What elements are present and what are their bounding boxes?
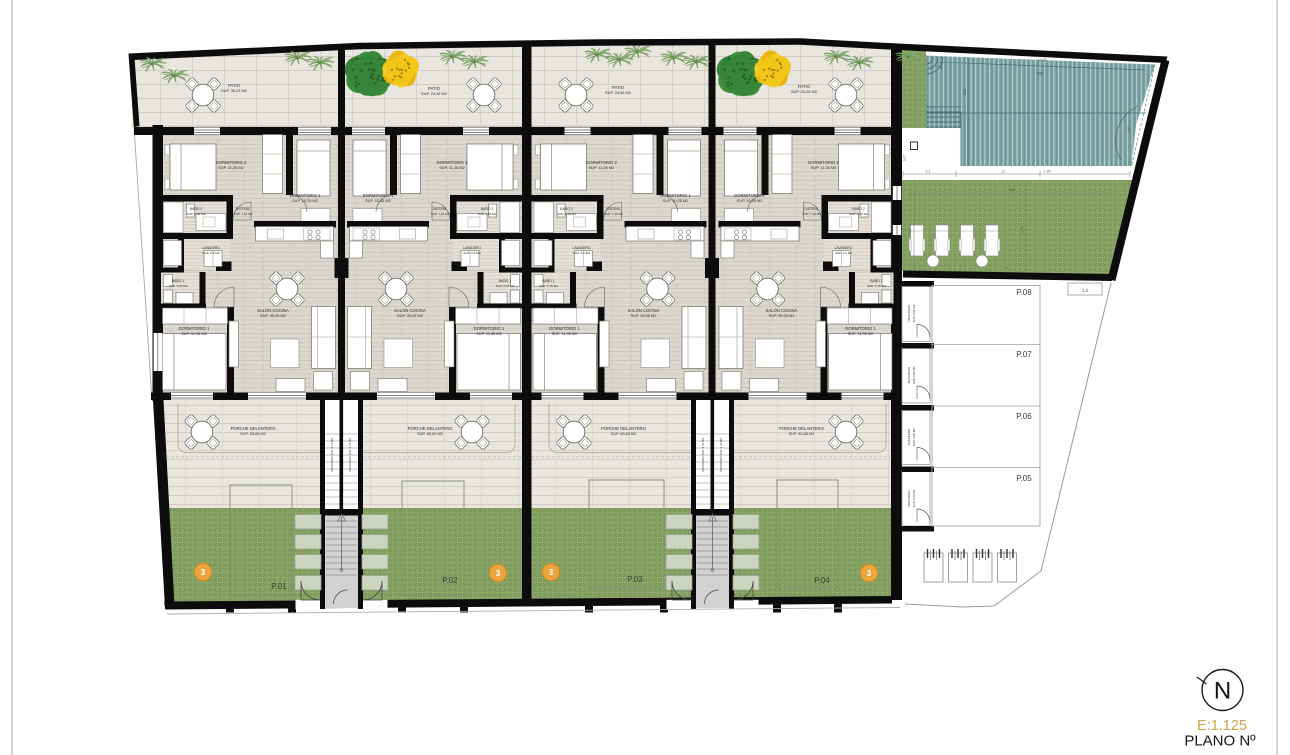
svg-text:TRASTERO SUP. 2,47 M2: TRASTERO SUP. 2,47 M2 (330, 438, 334, 473)
svg-text:SUP. 63,65 M2: SUP. 63,65 M2 (789, 431, 815, 436)
svg-text:P.03: P.03 (627, 575, 643, 584)
svg-text:SUP. 11,26 M2: SUP. 11,26 M2 (218, 165, 244, 170)
svg-text:P.07: P.07 (1016, 350, 1032, 359)
svg-text:SUP. 3,90 M2: SUP. 3,90 M2 (849, 212, 868, 216)
svg-text:SUP. 10,25 M2: SUP. 10,25 M2 (663, 198, 689, 203)
svg-text:P.06: P.06 (1016, 412, 1032, 421)
svg-text:SUP. 39,05 M2: SUP. 39,05 M2 (260, 313, 286, 318)
svg-text:SUP. 39,05 M2: SUP. 39,05 M2 (397, 313, 423, 318)
svg-text:SUP. 10,25 M2: SUP. 10,25 M2 (292, 198, 318, 203)
svg-text:TRASTERO: TRASTERO (907, 304, 911, 321)
svg-text:1,5: 1,5 (1004, 266, 1009, 270)
svg-text:PLANO Nº: PLANO Nº (1184, 733, 1256, 750)
svg-text:SUP. 11,26 M2: SUP. 11,26 M2 (589, 165, 615, 170)
svg-text:BAÑO 1: BAÑO 1 (870, 278, 883, 283)
svg-text:BAÑO 1: BAÑO 1 (172, 278, 185, 283)
svg-text:SUP. 39,05 M2: SUP. 39,05 M2 (631, 313, 657, 318)
svg-text:9,65: 9,65 (1009, 188, 1016, 192)
svg-text:SUP. 63,65 M2: SUP. 63,65 M2 (240, 431, 266, 436)
svg-text:3: 3 (496, 569, 501, 578)
svg-text:TRASTERO: TRASTERO (907, 428, 911, 445)
svg-text:DISTRIB.: DISTRIB. (433, 207, 447, 211)
svg-text:SUP. 2,05 M2: SUP. 2,05 M2 (912, 428, 916, 446)
svg-text:9,47: 9,47 (903, 155, 907, 161)
svg-text:TRASTERO SUP. 2,47 M2: TRASTERO SUP. 2,47 M2 (719, 438, 723, 473)
svg-text:SUP. 24,26 M2: SUP. 24,26 M2 (421, 91, 447, 96)
svg-text:P.01: P.01 (271, 582, 287, 591)
svg-text:SUP. 7,16 M2: SUP. 7,16 M2 (431, 212, 450, 216)
svg-text:SUP. 3,90 M2: SUP. 3,90 M2 (557, 212, 576, 216)
svg-text:SUP. 10,25 M2: SUP. 10,25 M2 (737, 198, 763, 203)
svg-text:BAÑO 2: BAÑO 2 (481, 206, 494, 211)
svg-text:SUP. 2,5 M2: SUP. 2,5 M2 (835, 251, 852, 255)
svg-text:SUP. 10,25 M2: SUP. 10,25 M2 (365, 198, 391, 203)
svg-text:P.08: P.08 (1016, 288, 1032, 297)
svg-text:SUP. 2,5 M2: SUP. 2,5 M2 (202, 251, 219, 255)
svg-text:SUP. 11,96 M2: SUP. 11,96 M2 (848, 331, 874, 336)
svg-text:SUP. 2,05 M2: SUP. 2,05 M2 (912, 489, 916, 507)
svg-text:BAÑO 2: BAÑO 2 (560, 206, 573, 211)
svg-text:SUP. 11,96 M2: SUP. 11,96 M2 (476, 331, 502, 336)
svg-text:3: 3 (201, 568, 206, 577)
svg-text:SUP. 11,26 M2: SUP. 11,26 M2 (811, 165, 837, 170)
svg-text:N: N (1214, 678, 1231, 705)
svg-text:SUP. 36,23 M2: SUP. 36,23 M2 (221, 88, 247, 93)
svg-text:4,46: 4,46 (1020, 227, 1024, 234)
svg-text:P.04: P.04 (814, 576, 830, 585)
svg-text:SUP. 3,75 M2: SUP. 3,75 M2 (496, 284, 515, 288)
svg-text:1,2: 1,2 (1082, 288, 1089, 293)
svg-text:SUP. 11,96 M2: SUP. 11,96 M2 (181, 331, 207, 336)
svg-text:TRASTERO: TRASTERO (907, 489, 911, 506)
svg-text:3: 3 (549, 568, 554, 577)
svg-text:SUP. 2,5 M2: SUP. 2,5 M2 (573, 251, 590, 255)
svg-text:SUP. 2,05 M2: SUP. 2,05 M2 (912, 366, 916, 384)
svg-text:DISTRIB.: DISTRIB. (804, 207, 818, 211)
svg-text:2,59: 2,59 (963, 89, 967, 95)
svg-text:SUP. 63,65 M2: SUP. 63,65 M2 (611, 431, 637, 436)
svg-text:SUP. 24,26 M2: SUP. 24,26 M2 (791, 89, 817, 94)
svg-text:SUP. 3,75 M2: SUP. 3,75 M2 (169, 284, 188, 288)
svg-text:SUP. 7,16 M2: SUP. 7,16 M2 (604, 212, 623, 216)
svg-text:7,39: 7,39 (1044, 170, 1051, 174)
svg-text:SUP. 3,90 M2: SUP. 3,90 M2 (478, 212, 497, 216)
svg-text:10,02: 10,02 (1038, 58, 1047, 62)
svg-text:DISTRIB.: DISTRIB. (236, 207, 250, 211)
svg-text:P.02: P.02 (442, 576, 458, 585)
svg-text:LAVADERO: LAVADERO (463, 246, 481, 250)
svg-text:BAÑO 2: BAÑO 2 (852, 206, 865, 211)
svg-text:SUP. 7,16 M2: SUP. 7,16 M2 (802, 212, 821, 216)
svg-text:LAVADERO: LAVADERO (835, 246, 853, 250)
svg-text:SUP. 11,96 M2: SUP. 11,96 M2 (552, 331, 578, 336)
svg-text:P.05: P.05 (1016, 474, 1032, 483)
svg-text:15: 15 (1001, 170, 1005, 174)
svg-text:SUP. 3,75 M2: SUP. 3,75 M2 (867, 284, 886, 288)
svg-text:SUP. 24,00 M2: SUP. 24,00 M2 (605, 90, 631, 95)
svg-text:SUP. 63,65 M2: SUP. 63,65 M2 (417, 431, 443, 436)
svg-text:4,1: 4,1 (908, 229, 912, 234)
svg-text:SUP. 11,26 M2: SUP. 11,26 M2 (439, 165, 465, 170)
svg-text:SUP. 2,05 M2: SUP. 2,05 M2 (912, 304, 916, 322)
svg-text:BAÑO 2: BAÑO 2 (190, 206, 203, 211)
svg-text:SUP. 3,90 M2: SUP. 3,90 M2 (187, 212, 206, 216)
svg-text:3: 3 (867, 569, 872, 578)
svg-text:BAÑO 1: BAÑO 1 (499, 278, 512, 283)
svg-text:2,1: 2,1 (926, 170, 931, 174)
svg-text:SUP. 2,5 M2: SUP. 2,5 M2 (463, 251, 480, 255)
svg-text:SUP. 3,75 M2: SUP. 3,75 M2 (539, 284, 558, 288)
svg-text:TRASTERO SUP. 2,47 M2: TRASTERO SUP. 2,47 M2 (348, 438, 352, 473)
svg-text:LAVADERO: LAVADERO (202, 246, 220, 250)
svg-text:TRASTERO: TRASTERO (907, 366, 911, 383)
svg-text:LAVADERO: LAVADERO (573, 246, 591, 250)
svg-text:9,65: 9,65 (1037, 72, 1044, 76)
svg-text:SUP. 39,05 M2: SUP. 39,05 M2 (769, 313, 795, 318)
svg-text:BAÑO 1: BAÑO 1 (542, 278, 555, 283)
svg-text:DISTRIB.: DISTRIB. (606, 207, 620, 211)
svg-text:TRASTERO SUP. 2,47 M2: TRASTERO SUP. 2,47 M2 (701, 438, 705, 473)
svg-text:SUP. 7,16 M2: SUP. 7,16 M2 (234, 212, 253, 216)
